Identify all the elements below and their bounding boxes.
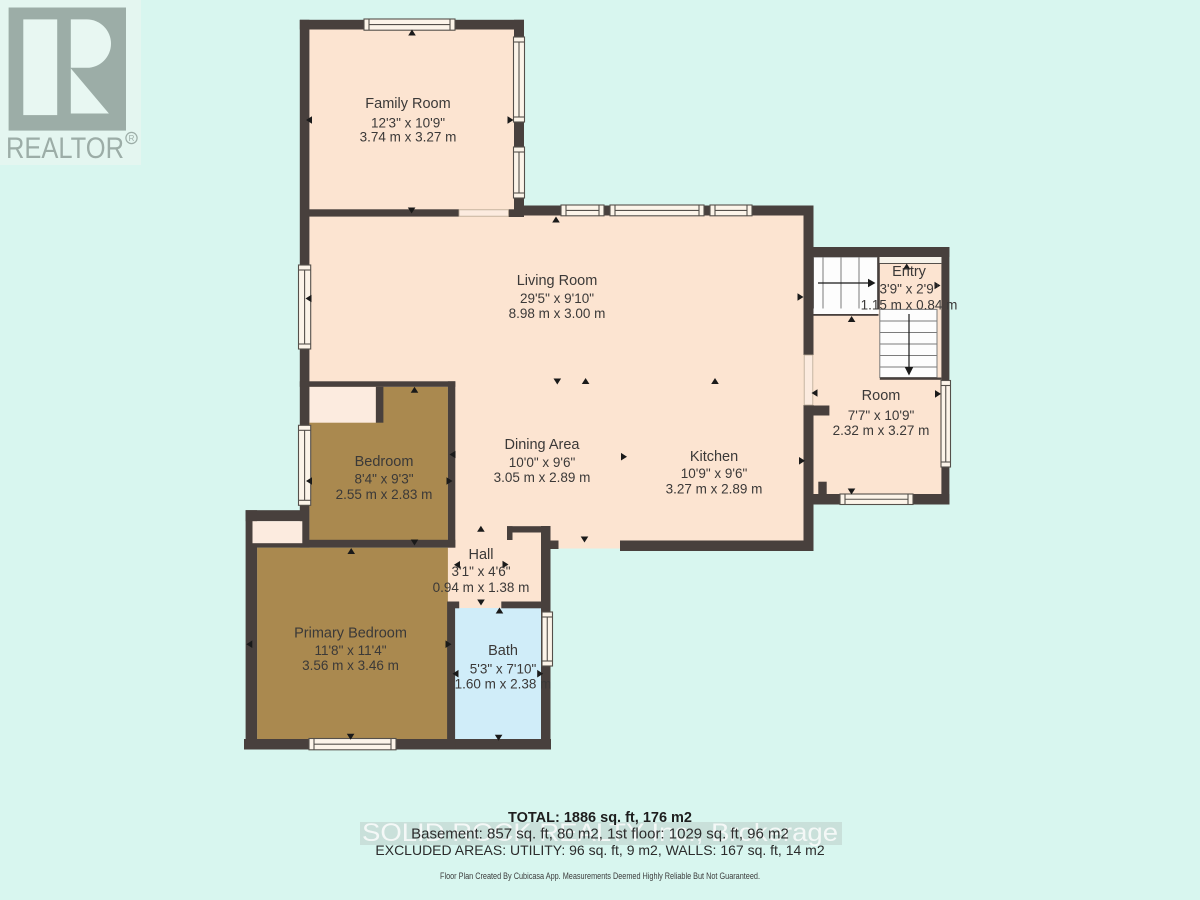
svg-text:Entry: Entry: [892, 264, 927, 280]
svg-text:1.15 m x 0.84 m: 1.15 m x 0.84 m: [861, 298, 958, 313]
svg-text:3.27 m x 2.89 m: 3.27 m x 2.89 m: [666, 481, 763, 496]
svg-text:Dining Area: Dining Area: [505, 437, 581, 453]
svg-text:10'0" x 9'6": 10'0" x 9'6": [509, 455, 576, 470]
svg-text:3.74 m x 3.27 m: 3.74 m x 3.27 m: [360, 129, 457, 144]
svg-text:11'8" x 11'4": 11'8" x 11'4": [314, 643, 386, 658]
svg-text:2.55 m x 2.83 m: 2.55 m x 2.83 m: [336, 487, 433, 502]
svg-text:8'4" x 9'3": 8'4" x 9'3": [354, 471, 413, 486]
svg-text:Kitchen: Kitchen: [690, 449, 738, 465]
svg-text:Floor Plan Created By Cubicasa: Floor Plan Created By Cubicasa App. Meas…: [440, 871, 760, 881]
svg-text:8.98 m x 3.00 m: 8.98 m x 3.00 m: [509, 306, 606, 321]
svg-text:3'1" x 4'6": 3'1" x 4'6": [451, 564, 510, 579]
svg-text:5'3" x 7'10": 5'3" x 7'10": [470, 661, 537, 676]
svg-text:1.60 m x 2.38 m: 1.60 m x 2.38 m: [455, 676, 552, 691]
svg-text:0.94 m x 1.38 m: 0.94 m x 1.38 m: [433, 580, 530, 595]
svg-text:Room: Room: [862, 388, 901, 404]
svg-text:Bath: Bath: [488, 643, 518, 659]
svg-text:Hall: Hall: [469, 547, 494, 563]
svg-text:R: R: [129, 134, 135, 143]
svg-text:3.56 m x 3.46 m: 3.56 m x 3.46 m: [302, 658, 399, 673]
svg-text:TOTAL: 1886 sq. ft, 176 m2: TOTAL: 1886 sq. ft, 176 m2: [508, 810, 692, 826]
svg-text:Basement: 857 sq. ft, 80 m2, 1: Basement: 857 sq. ft, 80 m2, 1st floor: …: [411, 826, 789, 843]
svg-text:7'7" x 10'9": 7'7" x 10'9": [848, 408, 915, 423]
svg-text:Living Room: Living Room: [517, 273, 598, 289]
svg-text:3'9" x 2'9": 3'9" x 2'9": [879, 281, 938, 296]
svg-text:REALTOR: REALTOR: [6, 132, 124, 165]
svg-text:2.32 m x 3.27 m: 2.32 m x 3.27 m: [833, 423, 930, 438]
svg-text:29'5" x 9'10": 29'5" x 9'10": [520, 291, 594, 306]
svg-text:Family Room: Family Room: [365, 96, 450, 112]
svg-text:3.05 m x 2.89 m: 3.05 m x 2.89 m: [494, 470, 591, 485]
svg-text:EXCLUDED AREAS: UTILITY: 96 sq: EXCLUDED AREAS: UTILITY: 96 sq. ft, 9 m2…: [375, 842, 824, 858]
svg-text:Bedroom: Bedroom: [355, 454, 414, 470]
svg-text:12'3" x 10'9": 12'3" x 10'9": [371, 115, 445, 130]
svg-text:Primary Bedroom: Primary Bedroom: [294, 626, 407, 642]
svg-text:10'9" x 9'6": 10'9" x 9'6": [681, 466, 748, 481]
